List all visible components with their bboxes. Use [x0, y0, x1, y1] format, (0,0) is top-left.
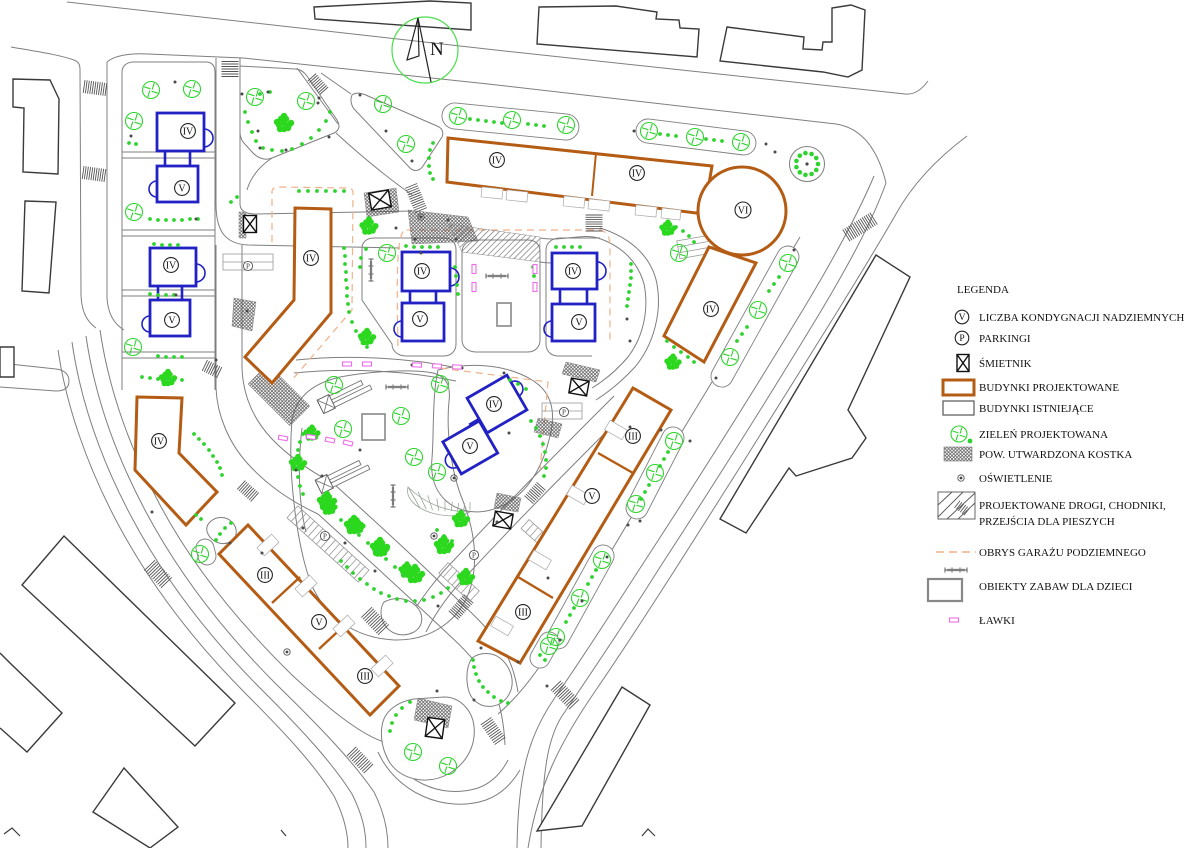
svg-text:OBRYS GARAŻU PODZIEMNEGO: OBRYS GARAŻU PODZIEMNEGO: [979, 547, 1146, 559]
svg-text:ŚMIETNIK: ŚMIETNIK: [979, 358, 1032, 370]
svg-text:V: V: [168, 315, 176, 326]
svg-text:P: P: [562, 409, 566, 417]
svg-text:IV: IV: [568, 266, 579, 277]
svg-text:III: III: [260, 570, 270, 581]
svg-text:V: V: [588, 491, 596, 502]
svg-text:PARKINGI: PARKINGI: [979, 333, 1031, 345]
svg-text:BUDYNKI ISTNIEJĄCE: BUDYNKI ISTNIEJĄCE: [979, 403, 1094, 415]
svg-text:IV: IV: [183, 126, 194, 137]
svg-text:III: III: [360, 671, 370, 682]
svg-text:BUDYNKI PROJEKTOWANE: BUDYNKI PROJEKTOWANE: [979, 382, 1119, 394]
svg-text:IV: IV: [154, 436, 165, 447]
svg-text:IV: IV: [417, 266, 428, 277]
svg-text:IV: IV: [306, 253, 317, 264]
svg-text:PROJEKTOWANE DROGI, CHODNIKI,: PROJEKTOWANE DROGI, CHODNIKI,: [979, 500, 1166, 512]
svg-text:III: III: [518, 607, 528, 618]
svg-text:ZIELEŃ PROJEKTOWANA: ZIELEŃ PROJEKTOWANA: [979, 429, 1108, 441]
svg-text:PRZEJŚCIA DLA PIESZYCH: PRZEJŚCIA DLA PIESZYCH: [979, 516, 1115, 528]
svg-text:LICZBA KONDYGNACJI NADZIEMNYCH: LICZBA KONDYGNACJI NADZIEMNYCH: [979, 312, 1184, 324]
svg-text:V: V: [575, 317, 583, 328]
svg-text:P: P: [246, 263, 250, 271]
svg-text:V: V: [959, 313, 966, 323]
svg-text:IV: IV: [166, 260, 177, 271]
svg-text:P: P: [323, 533, 327, 541]
svg-text:P: P: [959, 334, 964, 344]
svg-text:N: N: [430, 39, 444, 60]
svg-text:LEGENDA: LEGENDA: [957, 284, 1009, 296]
svg-text:OBIEKTY ZABAW DLA DZIECI: OBIEKTY ZABAW DLA DZIECI: [979, 581, 1133, 593]
svg-text:POW. UTWARDZONA KOSTKA: POW. UTWARDZONA KOSTKA: [979, 449, 1132, 461]
svg-text:VI: VI: [738, 205, 749, 216]
svg-text:IV: IV: [632, 168, 643, 179]
svg-text:III: III: [628, 431, 638, 442]
svg-text:V: V: [466, 441, 474, 452]
svg-text:V: V: [178, 183, 186, 194]
svg-text:V: V: [416, 314, 424, 325]
svg-text:IV: IV: [489, 399, 500, 410]
svg-text:V: V: [315, 617, 323, 628]
svg-text:P: P: [472, 552, 476, 560]
svg-text:IV: IV: [492, 155, 503, 166]
svg-text:IV: IV: [706, 304, 717, 315]
svg-text:ŁAWKI: ŁAWKI: [979, 615, 1015, 627]
svg-text:OŚWIETLENIE: OŚWIETLENIE: [979, 473, 1053, 485]
